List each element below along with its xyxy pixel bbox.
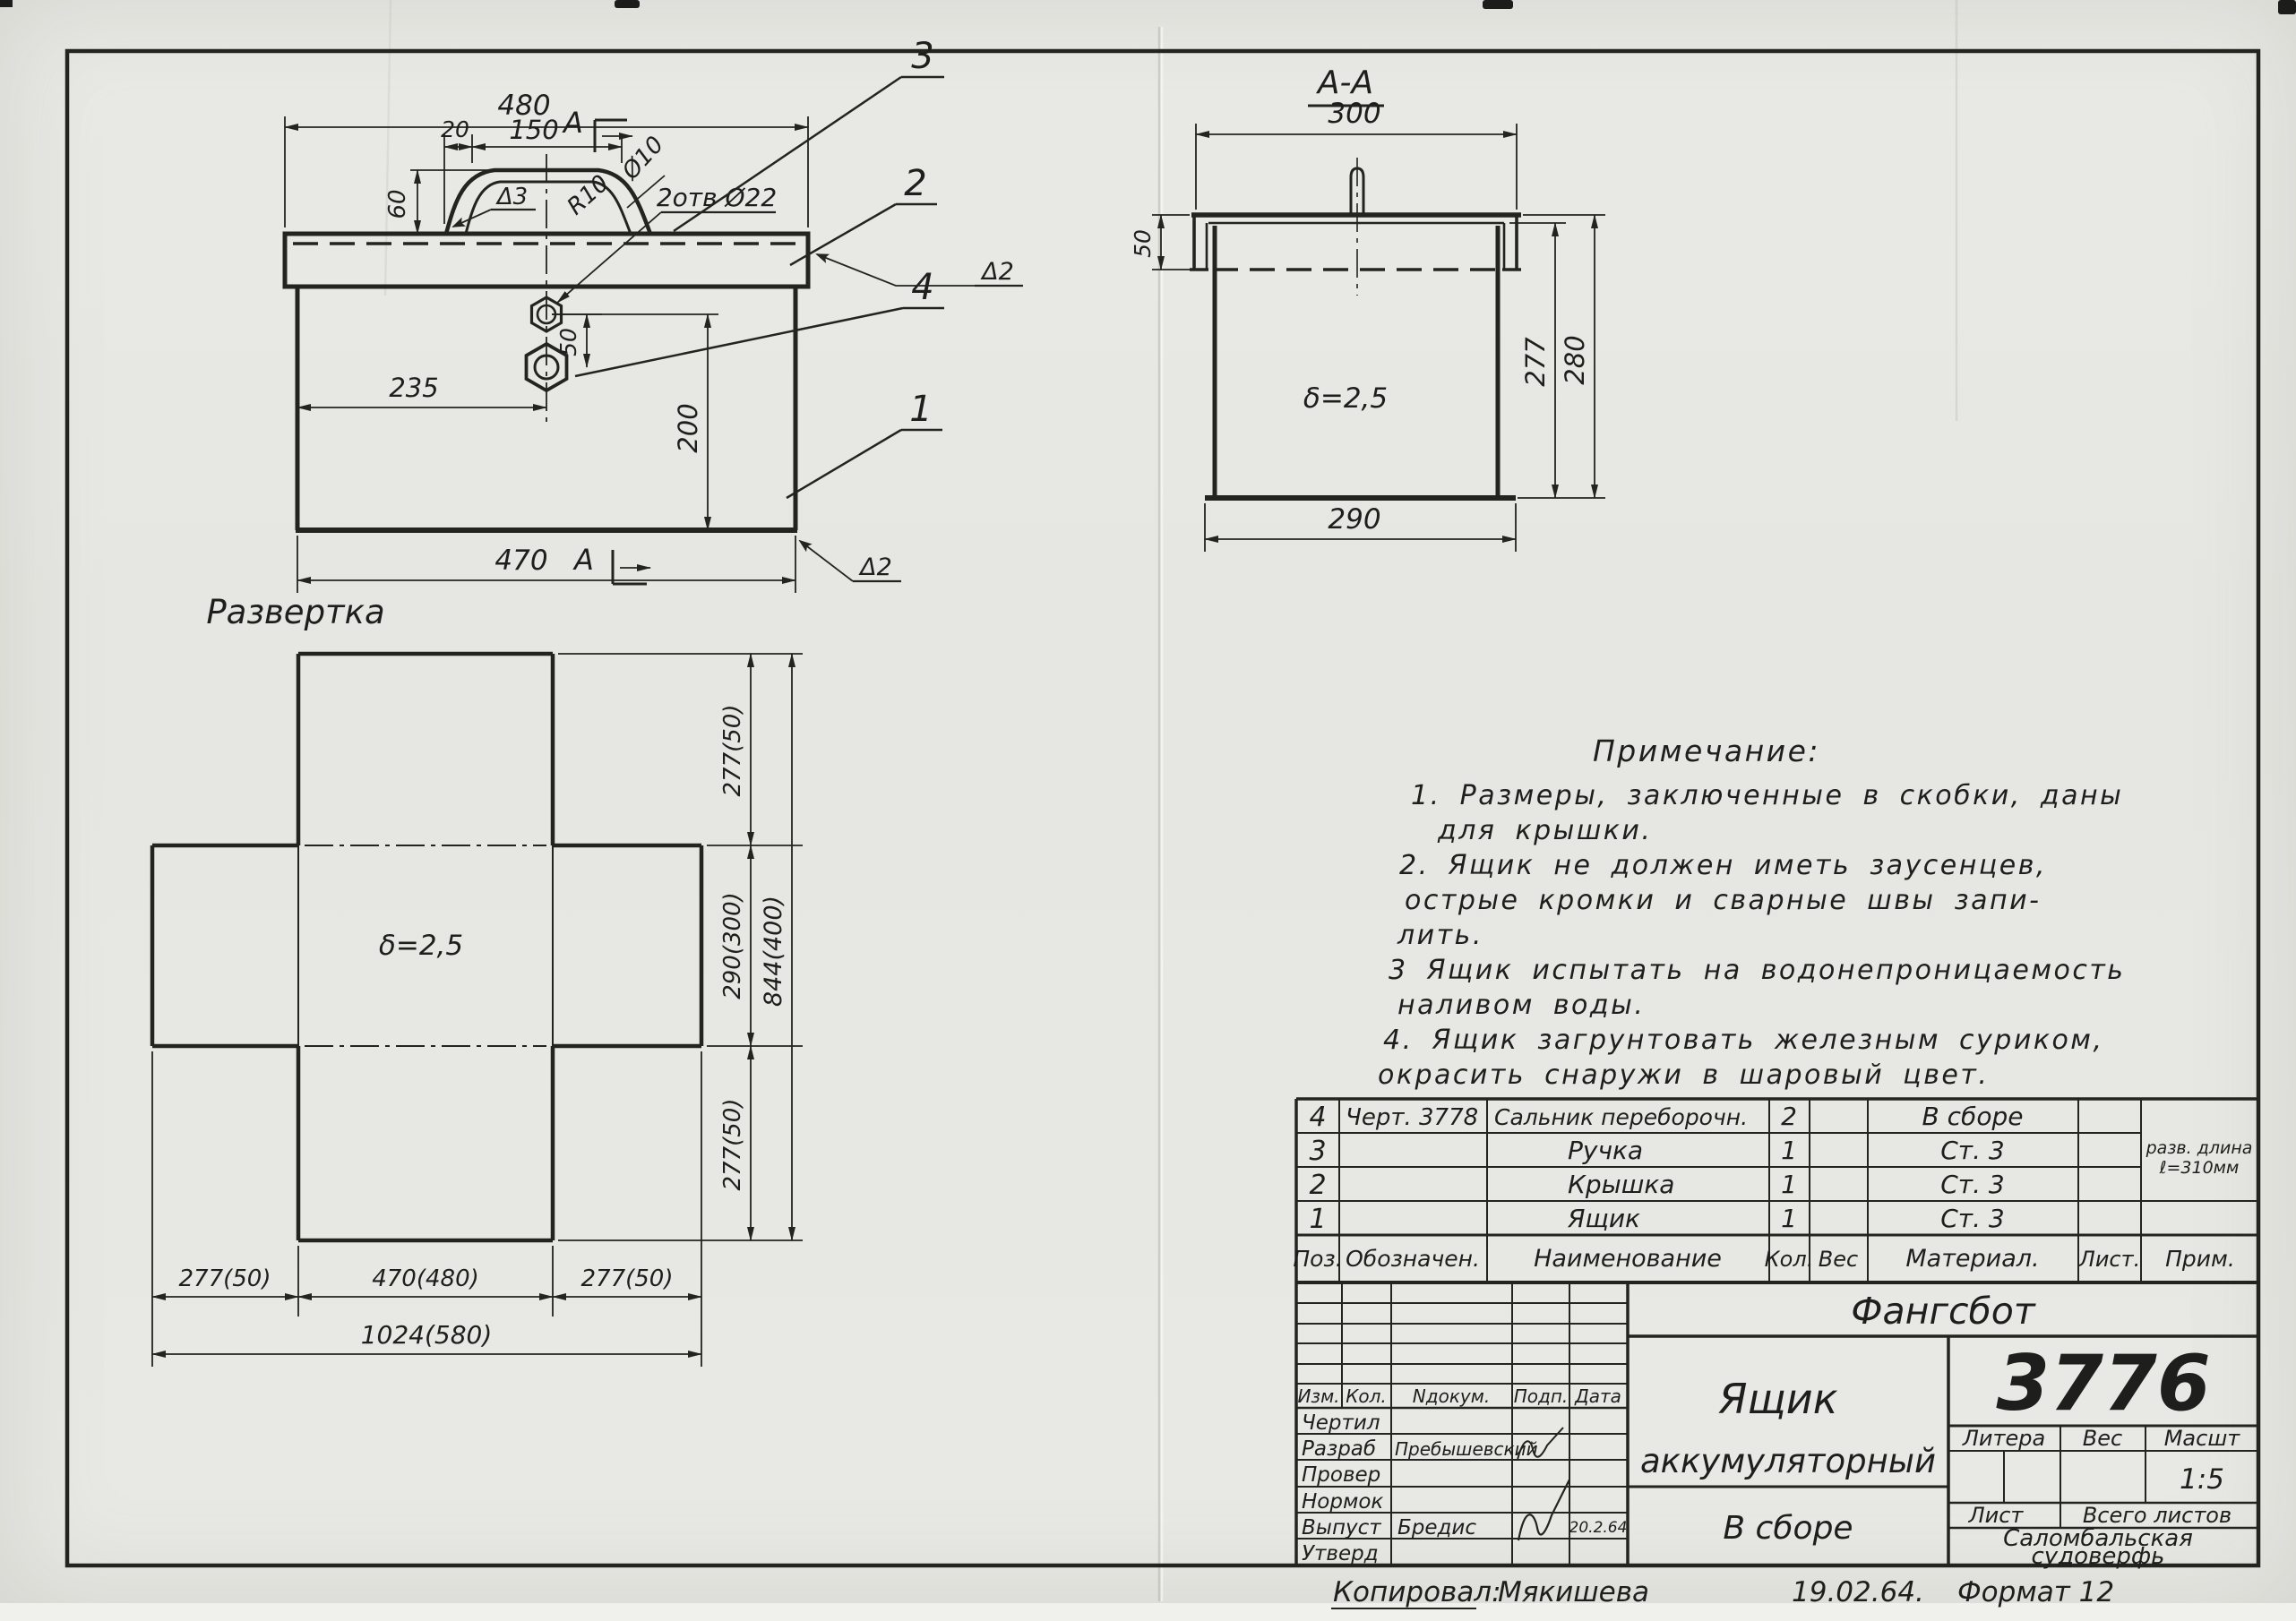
- copied-label: Копировал:: [1333, 1576, 1501, 1608]
- development-dim-top: 277(50): [719, 705, 746, 797]
- front-section-mark-bottom: [613, 550, 650, 584]
- part-pos: 4: [1309, 1102, 1326, 1133]
- note-line: 2. Ящик не должен иметь заусенцев,: [1399, 850, 2047, 881]
- col-header-weight: Вес: [1819, 1247, 1858, 1272]
- section-view: А-А 300: [1130, 64, 1605, 552]
- project-name: Фангсбот: [1851, 1290, 2036, 1333]
- note-line: 3 Ящик испытать на водонепроницаемость: [1389, 955, 2125, 986]
- part-name: Сальник переборочн.: [1494, 1104, 1748, 1130]
- front-dim-470: 470: [494, 545, 547, 577]
- part-qty: 2: [1781, 1102, 1797, 1131]
- front-dim-200: 200: [673, 403, 703, 452]
- front-dim-235: 235: [389, 373, 438, 403]
- development-thickness: δ=2,5: [379, 930, 463, 962]
- part-pos: 2: [1309, 1170, 1326, 1201]
- sheet-format: Формат 12: [1957, 1576, 2114, 1608]
- callout-1: 1: [787, 389, 942, 498]
- note-line: 4. Ящик загрунтовать железным суриком,: [1383, 1025, 2103, 1056]
- col-header-qty: Кол.: [1765, 1247, 1814, 1272]
- scan-smudges: [0, 0, 2296, 14]
- sig-label: Выпуст: [1302, 1516, 1381, 1540]
- drawing-number: 3776: [1996, 1339, 2210, 1428]
- development-dim-total-h: 1024(580): [361, 1320, 493, 1350]
- front-radius-label: R10: [563, 170, 615, 221]
- drawing-title-line1: Ящик: [1718, 1375, 1838, 1423]
- svg-text:4: 4: [911, 267, 933, 308]
- part-name: Ящик: [1567, 1204, 1640, 1233]
- part-pos: 1: [1309, 1204, 1326, 1235]
- part-name: Крышка: [1568, 1170, 1674, 1199]
- title-block: Фангсбот Ящик аккумуляторный В сборе 377…: [1296, 1282, 2258, 1570]
- section-dim-300: 300: [1328, 98, 1380, 130]
- sig-label: Чертил: [1302, 1411, 1380, 1435]
- section-dim-280: 280: [1560, 335, 1590, 384]
- parts-table: 4 Черт. 3778 Сальник переборочн. 2 В сбо…: [1293, 1099, 2258, 1565]
- footer-line: Копировал: Мякишева 19.02.64. Формат 12: [1331, 1576, 2114, 1608]
- part-material: Ст. 3: [1940, 1170, 2004, 1199]
- svg-text:Δ2: Δ2: [858, 553, 892, 581]
- blueprint-scan: 480 20 150 А 60 Δ3 R10: [0, 0, 2296, 1621]
- rev-header-kol: Кол.: [1346, 1385, 1387, 1407]
- section-dim-50: 50: [1130, 229, 1156, 258]
- development-dim-left: 277(50): [179, 1265, 271, 1292]
- front-view: 480 20 150 А 60 Δ3 R10: [285, 36, 1023, 593]
- development-view: Развертка: [152, 593, 803, 1367]
- part-qty: 1: [1781, 1170, 1797, 1199]
- drawing-canvas: 480 20 150 А 60 Δ3 R10: [0, 0, 2296, 1621]
- front-section-letter-top: А: [562, 106, 583, 140]
- litera-label: Литера: [1962, 1426, 2045, 1451]
- svg-text:3: 3: [911, 36, 933, 77]
- shipyard-line2: судоверфь: [2032, 1543, 2165, 1570]
- section-thickness: δ=2,5: [1303, 382, 1388, 415]
- rev-header-izm: Изм.: [1297, 1385, 1339, 1407]
- sig-label: Провер: [1302, 1463, 1380, 1487]
- sig-date: 20.2.64: [1569, 1519, 1628, 1537]
- development-dim-center: 470(480): [372, 1265, 479, 1292]
- section-dim-290: 290: [1328, 503, 1380, 536]
- callout-2: 2: [790, 163, 937, 265]
- front-weld-3: Δ3: [495, 184, 528, 210]
- front-holes-leader: [557, 212, 661, 303]
- front-dim-150: 150: [509, 115, 558, 145]
- part-note: разв. длина: [2146, 1138, 2253, 1158]
- development-dim-right: 277(50): [581, 1265, 674, 1292]
- copied-date: 19.02.64.: [1792, 1576, 1924, 1608]
- rev-header-podp: Подп.: [1514, 1385, 1569, 1407]
- section-dim-277: 277: [1520, 337, 1551, 387]
- col-header-designation: Обозначен.: [1346, 1246, 1480, 1272]
- note-line: окрасить снаружи в шаровый цвет.: [1378, 1059, 1989, 1091]
- part-designation: Черт. 3778: [1346, 1104, 1478, 1131]
- drawing-subtitle: В сборе: [1723, 1510, 1853, 1547]
- col-header-name: Наименование: [1534, 1245, 1722, 1273]
- part-material: Ст. 3: [1940, 1136, 2004, 1165]
- front-weld-2-body: Δ2: [800, 541, 901, 581]
- part-qty: 1: [1781, 1136, 1797, 1165]
- note-line: для крышки.: [1437, 815, 1652, 846]
- front-dim-60: 60: [384, 189, 411, 219]
- scale-label: Масшт: [2164, 1426, 2241, 1451]
- development-dim-total-v: 844(400): [760, 896, 787, 1007]
- development-title: Развертка: [206, 593, 384, 631]
- rev-header-ndoc: Nдокум.: [1413, 1385, 1490, 1407]
- sig-name: Бредис: [1397, 1516, 1476, 1540]
- front-dim-50: 50: [555, 328, 581, 356]
- sig-name: Пребышевский: [1395, 1438, 1538, 1460]
- col-header-pos: Поз.: [1293, 1246, 1342, 1272]
- development-dim-bot: 277(50): [719, 1099, 746, 1191]
- rev-header-data: Дата: [1574, 1385, 1621, 1407]
- svg-text:1: 1: [909, 389, 932, 430]
- front-holes-label: 2отв Ø22: [657, 183, 777, 212]
- note-line: наливом воды.: [1397, 990, 1645, 1021]
- notes-title: Примечание:: [1593, 733, 1820, 768]
- note-line: лить.: [1397, 920, 1483, 951]
- total-sheets-label: Всего листов: [2083, 1503, 2232, 1528]
- part-material: Ст. 3: [1940, 1204, 2004, 1233]
- drawing-title-line2: аккумуляторный: [1640, 1442, 1936, 1480]
- sig-label: Утверд: [1302, 1542, 1379, 1565]
- part-note: ℓ=310мм: [2159, 1158, 2240, 1178]
- notes-block: Примечание: 1. Размеры, заключенные в ск…: [1378, 733, 2125, 1091]
- part-name: Ручка: [1568, 1136, 1643, 1165]
- sig-label: Нормок: [1302, 1490, 1383, 1514]
- part-qty: 1: [1781, 1204, 1797, 1233]
- col-header-sheet: Лист.: [2078, 1247, 2140, 1272]
- part-pos: 3: [1309, 1136, 1326, 1167]
- front-dim-20: 20: [441, 116, 469, 142]
- col-header-note: Прим.: [2165, 1246, 2235, 1272]
- section-title: А-А: [1316, 64, 1373, 101]
- signature-vypust: [1518, 1479, 1569, 1540]
- front-section-letter-bottom: А: [572, 543, 594, 577]
- svg-text:Δ2: Δ2: [980, 258, 1014, 286]
- scale-value: 1:5: [2180, 1463, 2224, 1496]
- note-line: 1. Размеры, заключенные в скобки, даны: [1411, 780, 2123, 811]
- part-material: В сборе: [1922, 1102, 2024, 1131]
- col-header-material: Материал.: [1905, 1245, 2039, 1273]
- copied-name: Мякишева: [1498, 1576, 1649, 1608]
- svg-text:2: 2: [904, 163, 926, 204]
- sheet-label: Лист: [1968, 1503, 2025, 1528]
- note-line: острые кромки и сварные швы запи-: [1405, 885, 2041, 916]
- development-dim-mid: 290(300): [719, 892, 746, 999]
- weight-label: Вес: [2083, 1426, 2122, 1451]
- sig-label: Разраб: [1302, 1437, 1376, 1461]
